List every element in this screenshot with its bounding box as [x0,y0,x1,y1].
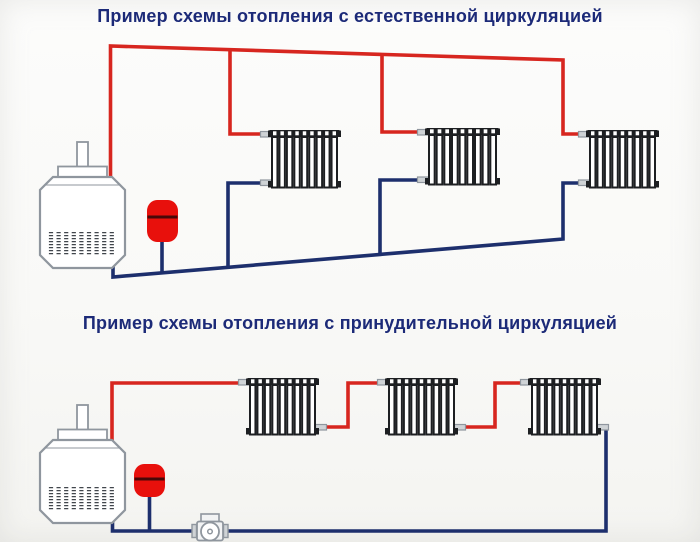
radiator-1-2 [418,128,501,185]
natural-circulation-scheme [40,46,659,277]
heating-schemes-drawing [0,0,700,542]
return-main [113,427,607,531]
radiator1-feed [230,50,273,134]
radiator-1-3 [579,130,660,188]
forced-circulation-scheme [40,378,609,541]
boiler-chimney [77,405,88,430]
return-main-sloped [113,183,590,277]
expansion-tank-2 [134,464,165,497]
radiator2-to-radiator3 [455,383,532,427]
circulation-pump [192,514,228,541]
radiator2-feed [382,54,430,132]
radiator2-return [380,180,430,255]
heating-schemes-image: Пример схемы отопления с естественной ци… [0,0,700,542]
radiator-1-1 [261,130,342,188]
radiator-2-1 [239,378,327,435]
radiator-2-2 [378,378,466,435]
boiler-chimney [77,142,88,167]
supply-riser [112,383,250,442]
radiator-2-3 [521,378,609,435]
expansion-tank-1 [147,200,178,242]
radiator1-return [228,183,273,267]
radiator1-to-radiator2 [315,383,389,427]
supply-main [111,46,591,178]
